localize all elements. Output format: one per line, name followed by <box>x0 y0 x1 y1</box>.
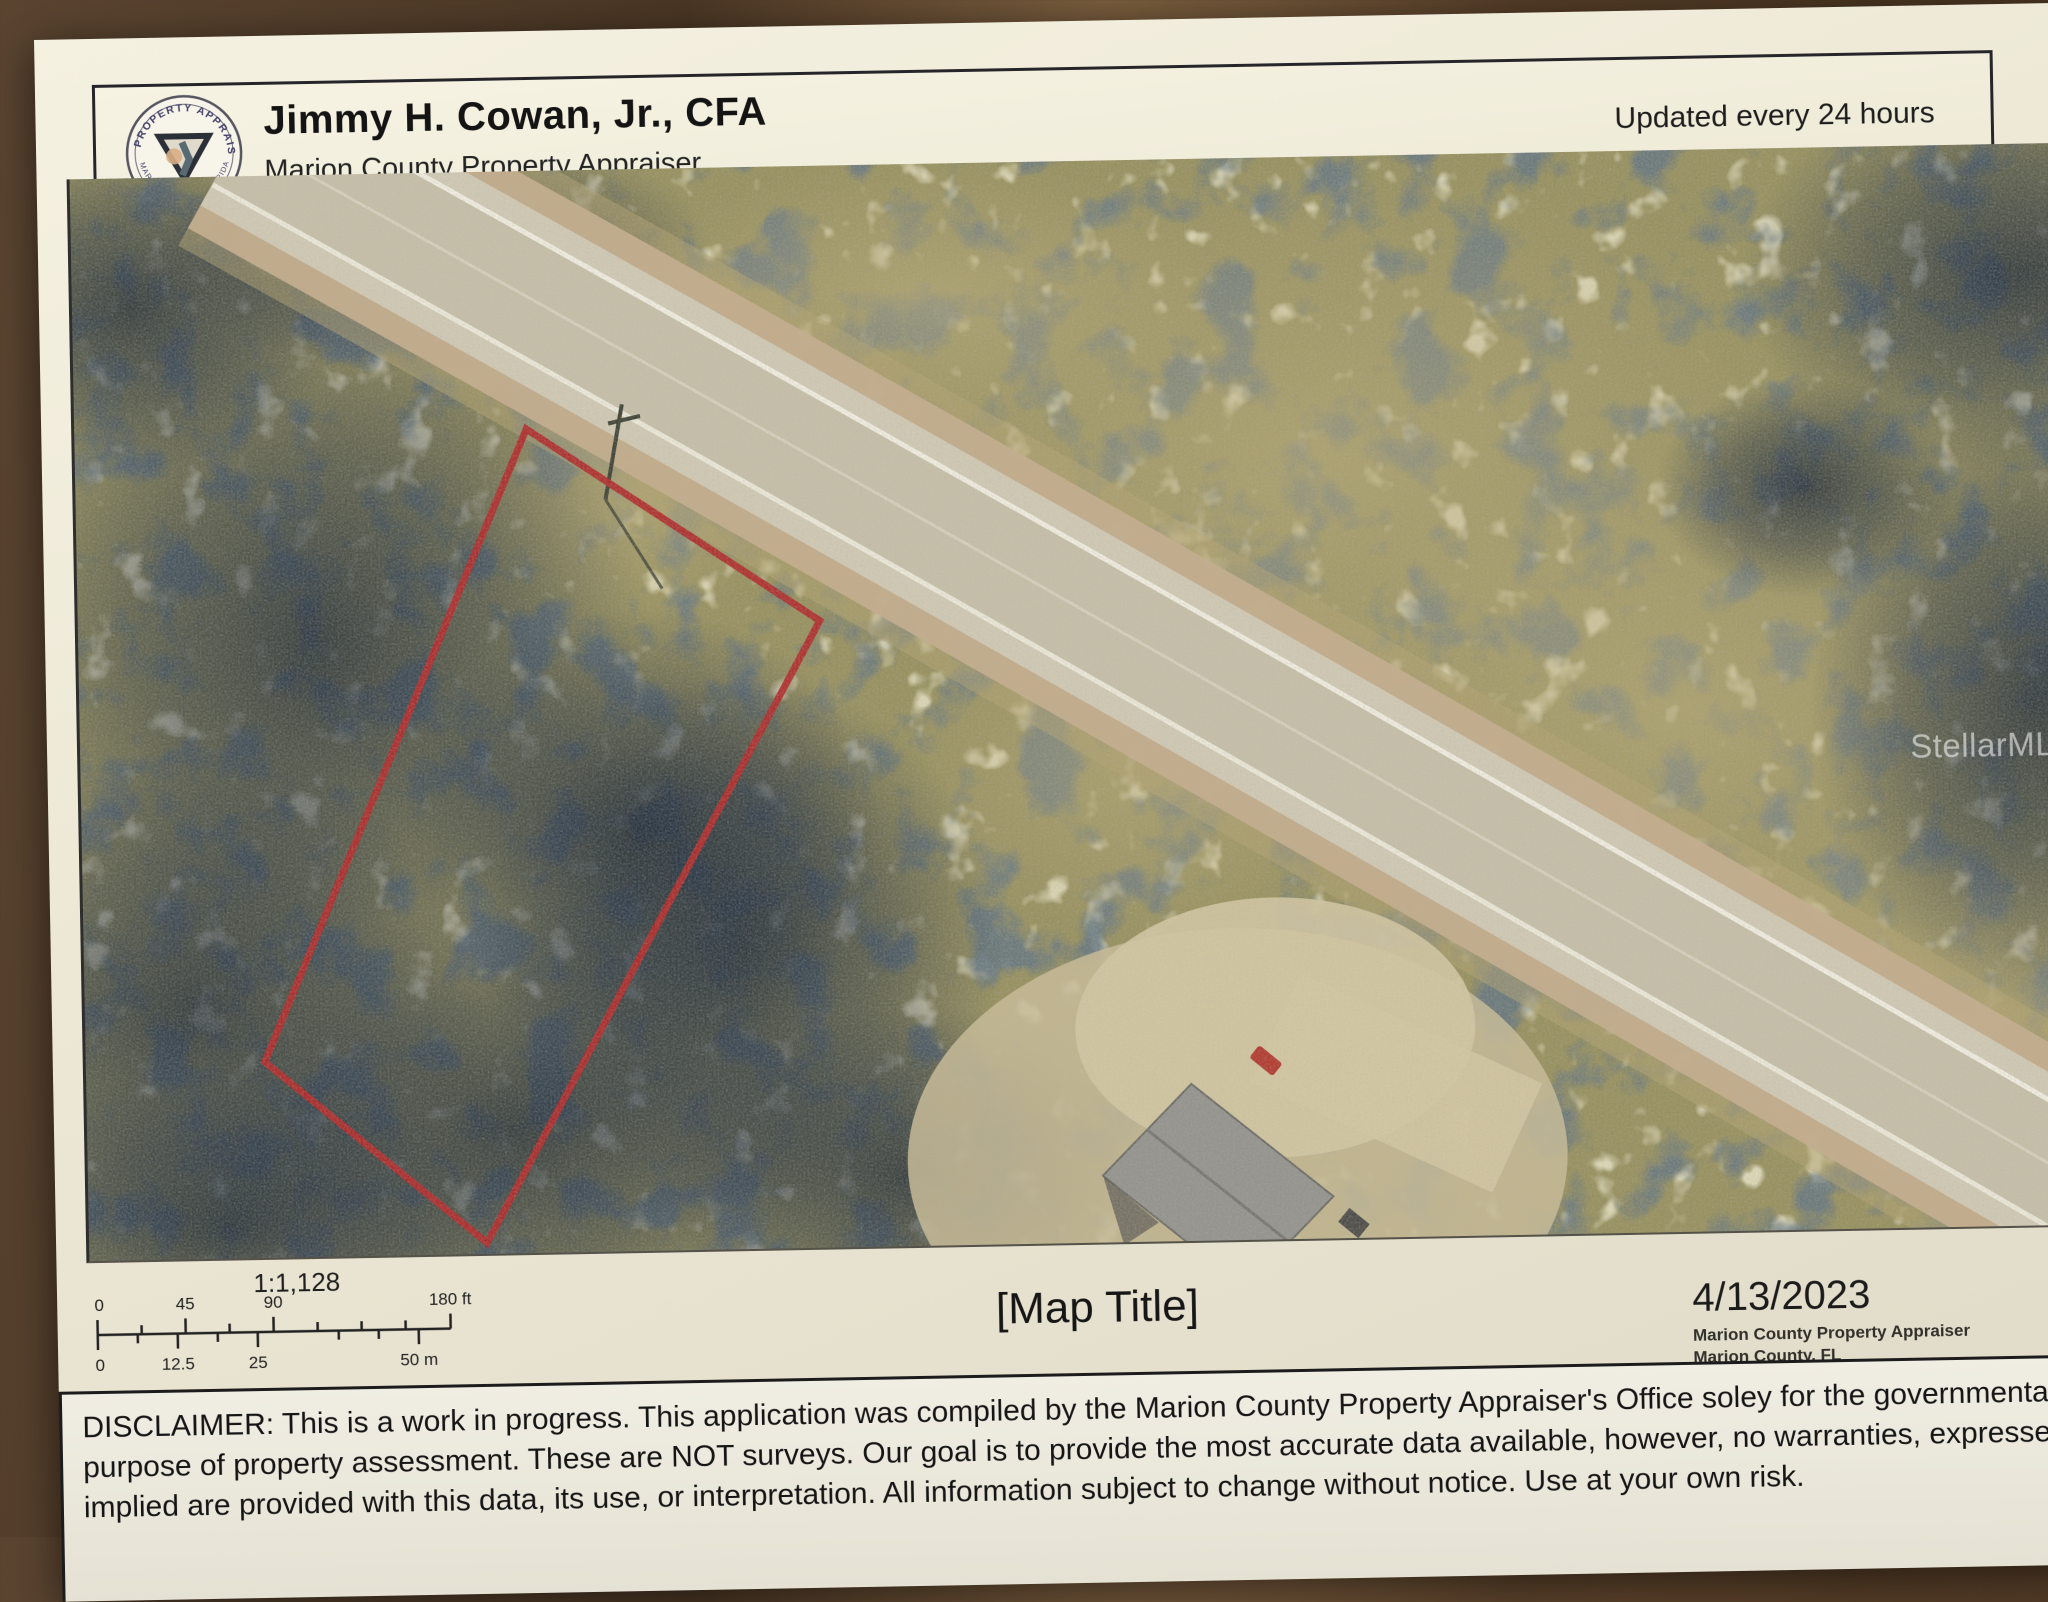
scale-ft-180: 180 ft <box>429 1290 472 1309</box>
printed-map-page: PROPERTY APPRAISER MARION COUNTY, FLORID… <box>34 2 2048 1600</box>
map-date: 4/13/2023 <box>1692 1271 1970 1321</box>
scale-m-50: 50 m <box>400 1350 438 1370</box>
scale-m-12-5: 12.5 <box>162 1354 195 1374</box>
map-title: [Map Title] <box>917 1279 1278 1336</box>
disclaimer-box: DISCLAIMER: This is a work in progress. … <box>59 1348 2048 1602</box>
scale-ft-0: 0 <box>94 1296 104 1315</box>
aerial-map: StellarMLS <box>67 143 2048 1263</box>
appraiser-name: Jimmy H. Cowan, Jr., CFA <box>263 90 767 144</box>
updated-label: Updated every 24 hours <box>1614 96 1935 136</box>
scale-ft-90: 90 <box>264 1293 283 1312</box>
scale-ft-45: 45 <box>176 1294 195 1313</box>
date-block: 4/13/2023 Marion County Property Apprais… <box>1692 1271 1971 1369</box>
stellar-mls-watermark: StellarMLS <box>1910 725 2048 765</box>
scale-m-0: 0 <box>95 1356 105 1375</box>
scale-m-25: 25 <box>249 1353 268 1372</box>
scale-bar: 0 45 90 180 ft 0 12.5 <box>87 1290 509 1388</box>
